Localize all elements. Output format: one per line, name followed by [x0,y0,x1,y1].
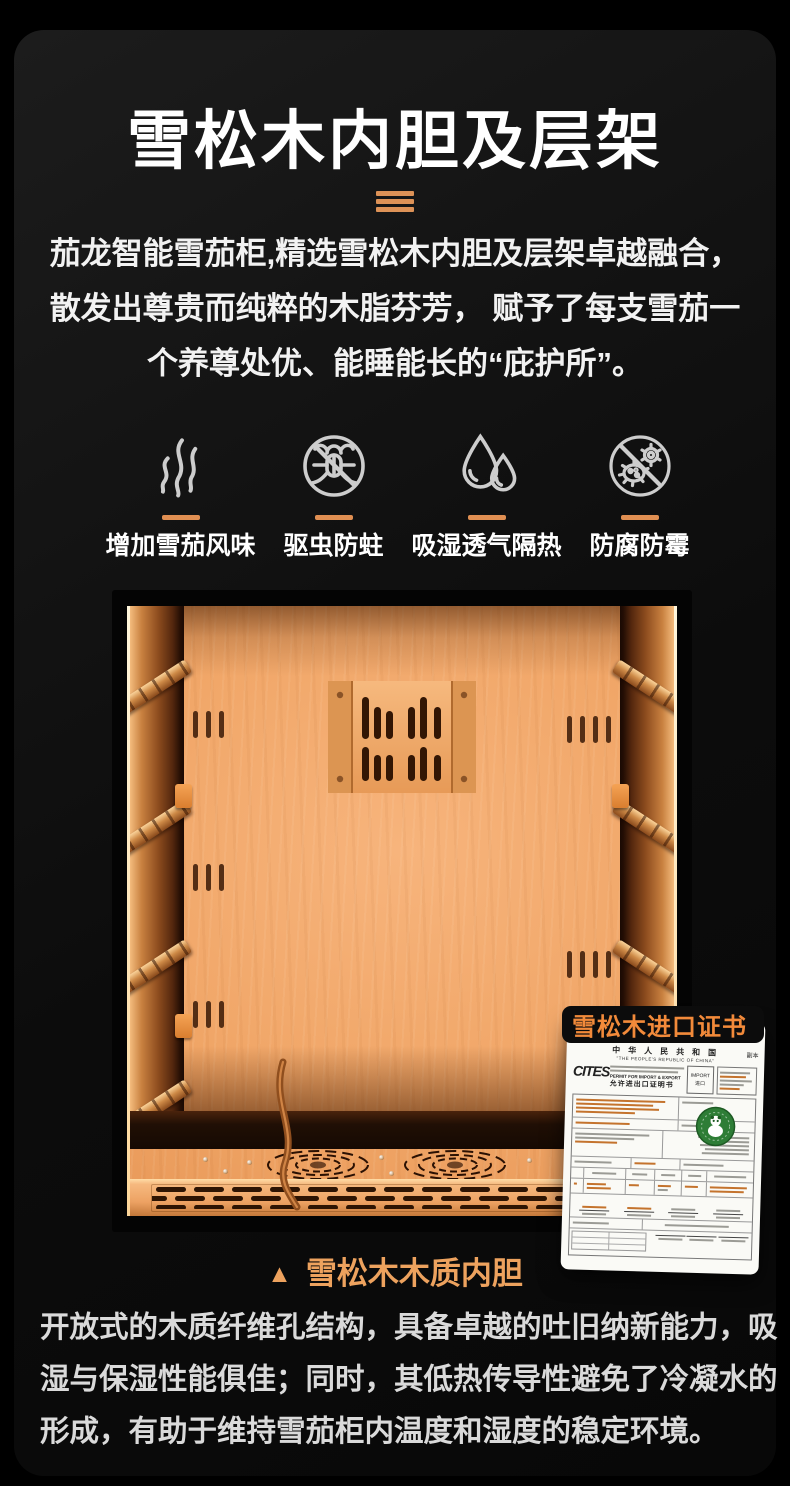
intro-line: 茄龙智能雪茄柜,精选雪松木内胆及层架卓越融合， [34,226,756,281]
cites-panda-stamp [694,1105,737,1153]
description-paragraph: 开放式的木质纤维孔结构，具备卓越的吐旧纳新能力，吸 湿与保湿性能俱佳；同时，其低… [40,1302,778,1458]
description-line: 湿与保湿性能俱佳；同时，其低热传导性避免了冷凝水的 [40,1354,778,1406]
feature-label: 吸湿透气隔热 [410,526,563,562]
photo-caption: ▲雪松木木质内胆 [14,1248,776,1293]
feature-underline [315,515,353,520]
certificate-title-badge: 雪松木进口证书 [562,1006,764,1043]
feature-underline [162,515,200,520]
feature-label: 增加雪茄风味 [104,526,257,562]
cert-permit-cn: 允许进出口证明书 [610,1078,684,1090]
cert-copy-mark: 副本 [746,1050,758,1059]
triple-bar-divider-icon [14,188,776,215]
triangle-marker-icon: ▲ [267,1260,292,1288]
no-insect-icon [257,425,410,507]
caption-text: 雪松木木质内胆 [306,1256,523,1291]
feature-label: 防腐防霉 [563,526,716,562]
cert-import-box: IMPORT 进口 [686,1066,713,1095]
feature-underline [468,515,506,520]
description-line: 形成，有助于维持雪茄柜内温度和湿度的稳定环境。 [40,1406,778,1458]
page-title: 雪松木内胆及层架 [14,90,776,182]
cert-permit-block: PERMIT FOR IMPORT & EXPORT 允许进出口证明书 [610,1063,685,1090]
certificate-document: 中 华 人 民 共 和 国 "THE PEOPLE'S REPUBLIC OF … [561,1017,766,1274]
feature-item-moisture: 吸湿透气隔热 [410,425,563,562]
cert-ref-numbers [716,1066,757,1095]
feature-list: 增加雪茄风味 [14,425,776,562]
cites-logo: CITES [573,1062,607,1079]
description-line: 开放式的木质纤维孔结构，具备卓越的吐旧纳新能力，吸 [40,1302,778,1354]
water-drops-icon [410,425,563,507]
section-panel: 雪松木内胆及层架 茄龙智能雪茄柜,精选雪松木内胆及层架卓越融合， 散发出尊贵而纯… [14,30,776,1476]
feature-underline [621,515,659,520]
no-mold-icon [563,425,716,507]
import-certificate: 中 华 人 民 共 和 国 "THE PEOPLE'S REPUBLIC OF … [562,1006,764,1276]
aroma-smoke-icon [104,425,257,507]
cert-header-row: CITES PERMIT FOR IMPORT & EXPORT 允许进出口证明… [573,1062,758,1095]
feature-label: 驱虫防蛀 [257,526,410,562]
intro-line: 散发出尊贵而纯粹的木脂芬芳， 赋予了每支雪茄一 [34,281,756,336]
intro-paragraph: 茄龙智能雪茄柜,精选雪松木内胆及层架卓越融合， 散发出尊贵而纯粹的木脂芬芳， 赋… [34,226,756,391]
feature-item-aroma: 增加雪茄风味 [104,425,257,562]
intro-line: 个养尊处优、能睡能长的“庇护所”。 [34,336,756,391]
feature-item-anti-mold: 防腐防霉 [563,425,716,562]
feature-item-anti-insect: 驱虫防蛀 [257,425,410,562]
